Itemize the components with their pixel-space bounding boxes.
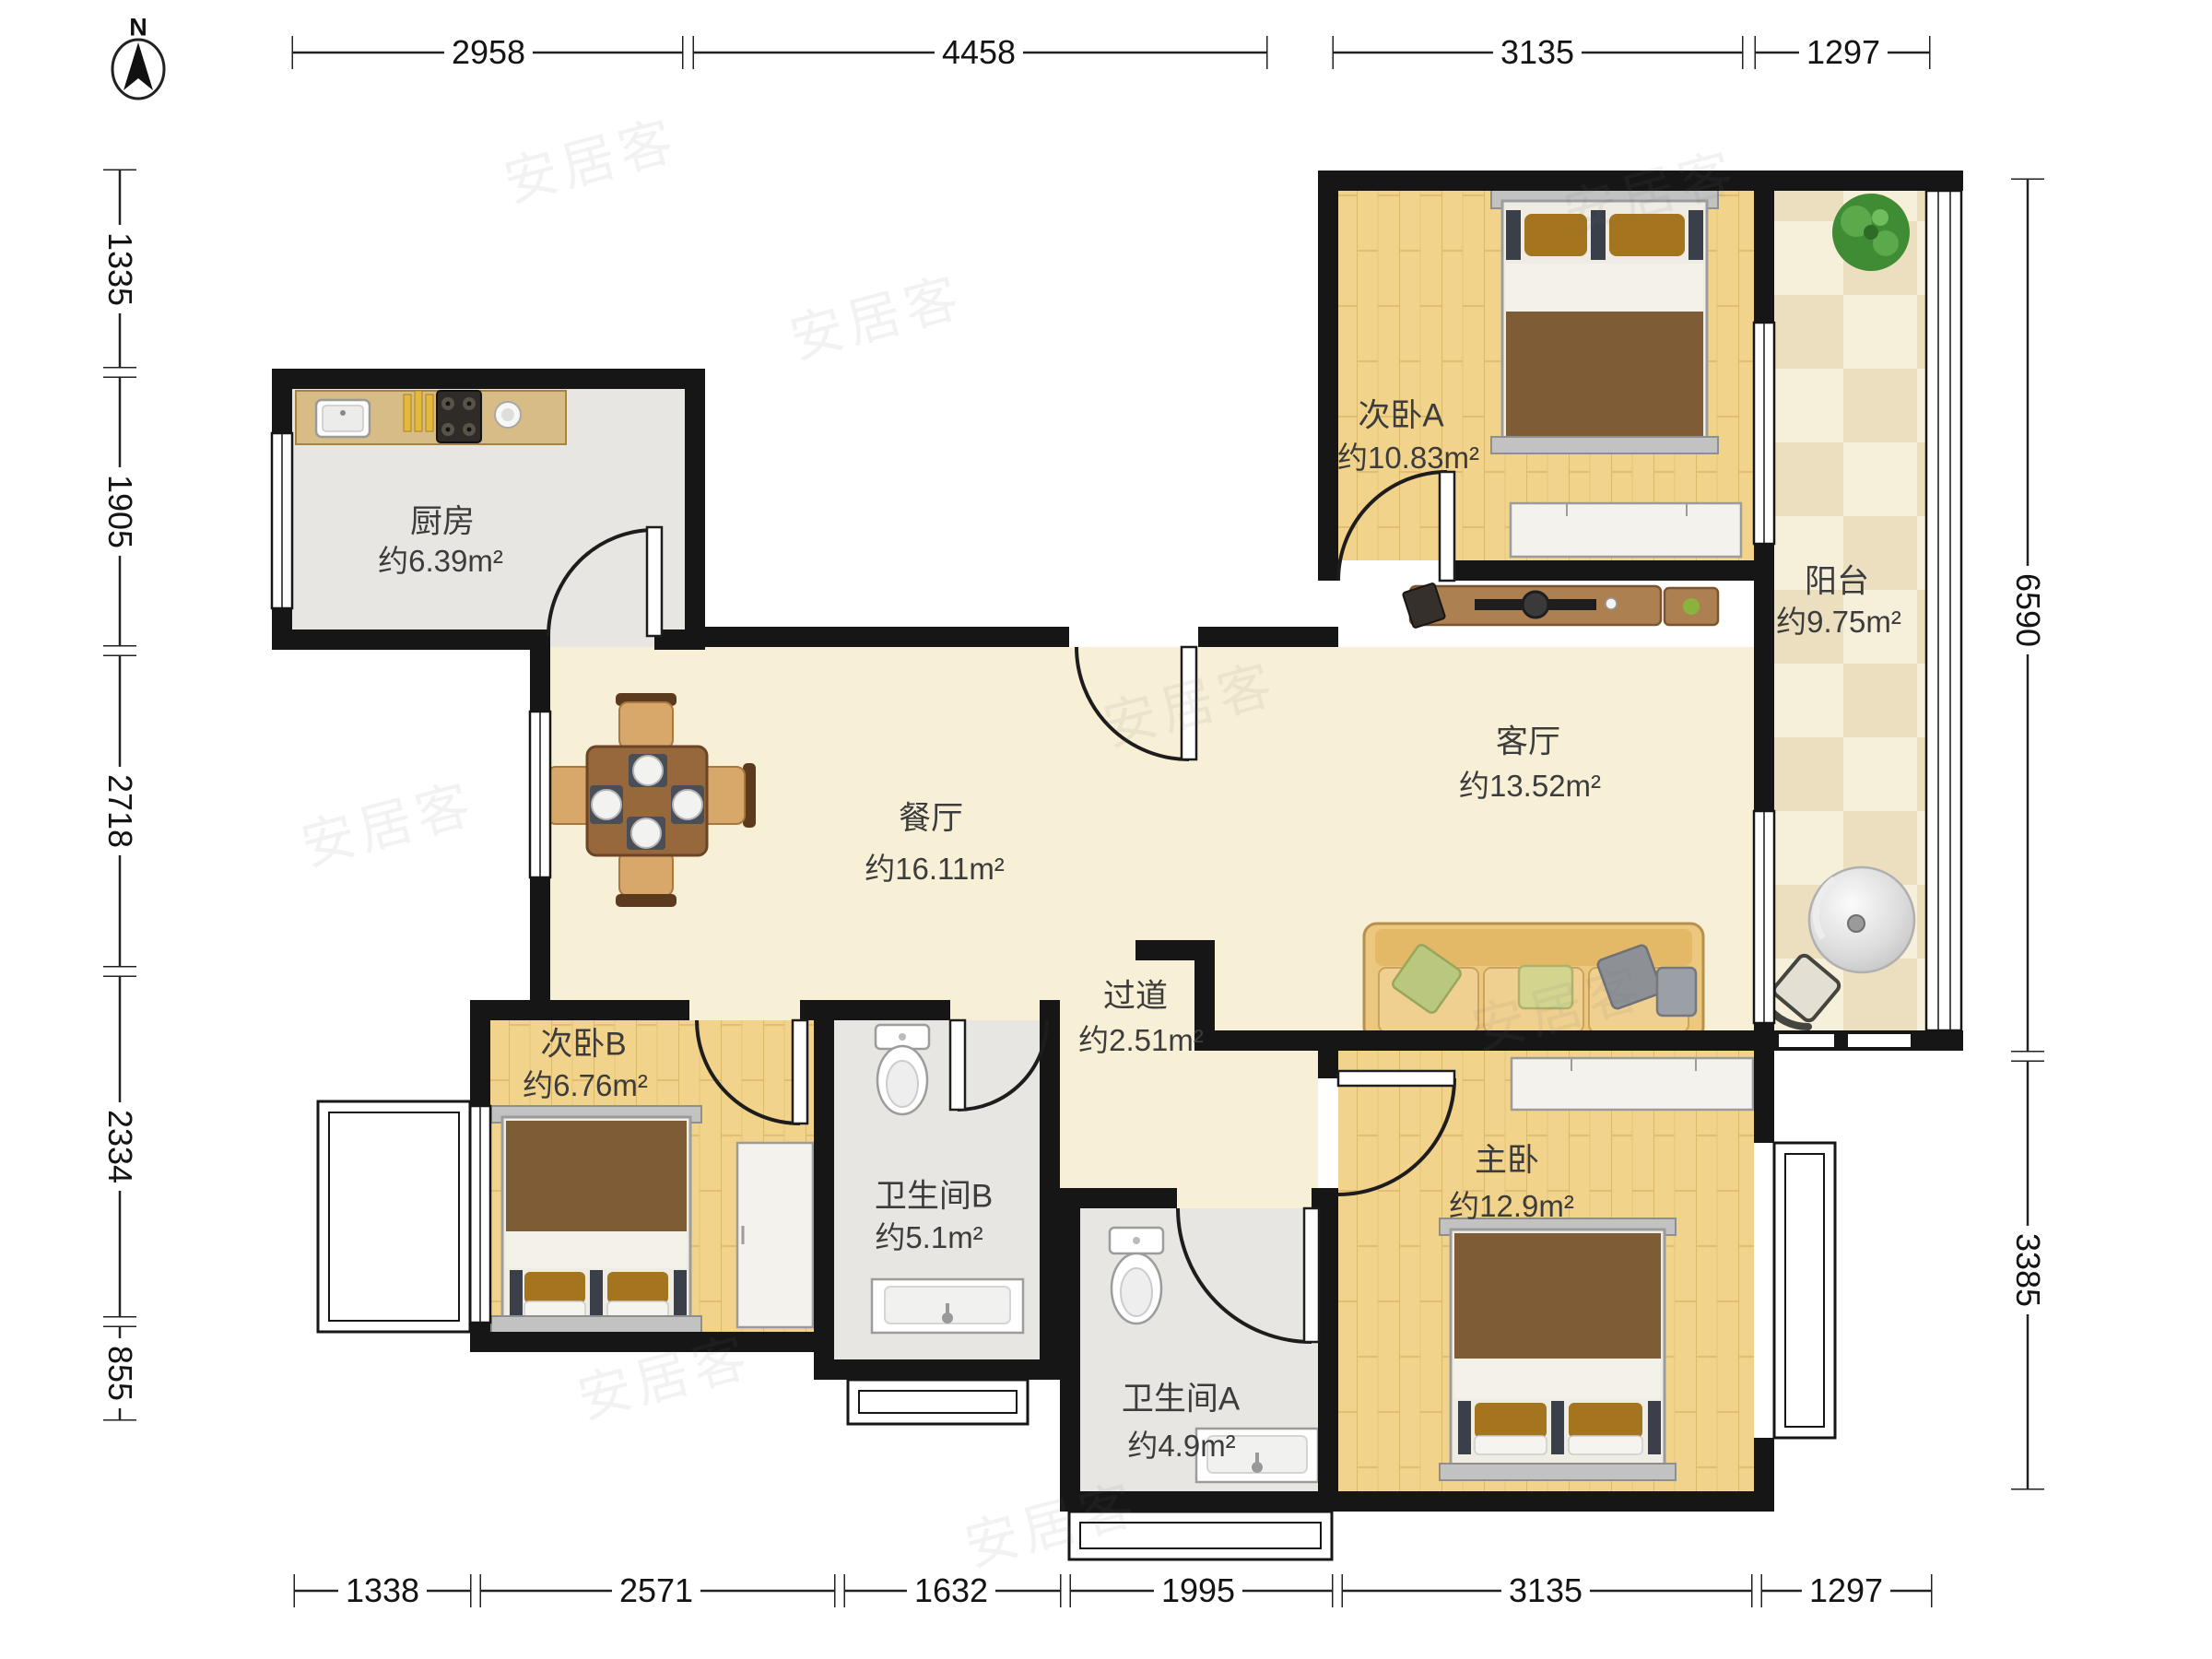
bedroomA-dresser [1511,503,1741,557]
dim-right-2: 3385 [2008,1226,2047,1314]
dim-top-3: 3135 [1493,33,1582,72]
bathroomA-sink [1196,1429,1318,1482]
dining-window [530,712,550,877]
stove-icon [437,391,481,442]
dim-top-4: 1297 [1799,33,1888,72]
dim-top-1: 2958 [444,33,533,72]
balcony-plant-icon [1832,194,1910,271]
bedroomB-wardrobe [737,1143,813,1327]
bathroomB-toilet [876,1025,929,1114]
dim-bottom-1: 1338 [338,1571,427,1610]
dim-bottom-2: 2571 [612,1571,700,1610]
dim-bottom-4: 1995 [1154,1571,1242,1610]
dim-top-2: 4458 [935,33,1023,72]
balcony-bottom-window [1848,1034,1911,1047]
dim-left-2: 1905 [100,467,139,556]
dim-left-4: 2334 [100,1102,139,1191]
kitchen-window [272,433,292,608]
compass-icon [112,40,164,99]
dim-left-1: 1335 [100,225,139,313]
pillow-icon [1657,968,1696,1016]
balcony-washer-icon [1809,867,1914,972]
bedroomB-bay-window [318,1101,470,1332]
dim-left-5: 855 [100,1338,139,1408]
master-dresser [1512,1058,1753,1110]
balcony-slider-window [1754,811,1774,1023]
master-bay-window [1774,1143,1835,1438]
bathroomB-sink [872,1279,1023,1333]
dim-right-1: 6590 [2008,566,2047,654]
dim-bottom-3: 1632 [907,1571,995,1610]
master-bed [1440,1218,1676,1480]
tv-console [1403,582,1718,628]
bedroomB-window [470,1106,490,1323]
bathroomA-toilet [1110,1228,1163,1324]
dim-left-3: 2718 [100,767,139,855]
kitchen-counter [296,391,566,444]
balcony-bottom-window [1779,1034,1834,1047]
dim-bottom-6: 1297 [1802,1571,1890,1610]
bedroomA-window [1754,323,1774,544]
floorplan-canvas: 安居客 安居客 安居客 安居客 安居客 安居客 安居客 安居客 N 厨房 约6.… [0,0,2212,1659]
dim-bottom-5: 3135 [1501,1571,1590,1610]
bedroomB-bed [491,1106,701,1333]
balcony-right-window [1926,191,1961,1030]
compass-north-label: N [129,14,147,42]
bathroomB-bay-window [848,1380,1028,1424]
